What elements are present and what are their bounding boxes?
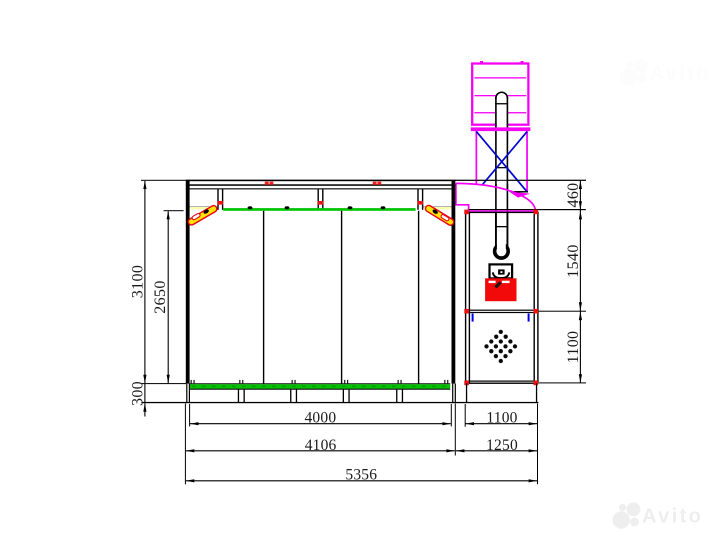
svg-text:5356: 5356 xyxy=(345,467,377,484)
svg-text:Avito: Avito xyxy=(650,63,711,85)
svg-text:1100: 1100 xyxy=(486,410,517,427)
svg-text:4106: 4106 xyxy=(305,437,337,454)
svg-text:4000: 4000 xyxy=(304,410,336,427)
svg-text:3100: 3100 xyxy=(129,265,146,298)
svg-text:1250: 1250 xyxy=(486,437,518,454)
svg-text:1540: 1540 xyxy=(565,244,582,277)
svg-text:2650: 2650 xyxy=(152,280,169,313)
svg-text:460: 460 xyxy=(565,182,582,207)
svg-text:Avito: Avito xyxy=(642,506,703,528)
svg-text:300: 300 xyxy=(129,381,146,406)
svg-text:1100: 1100 xyxy=(565,331,582,364)
